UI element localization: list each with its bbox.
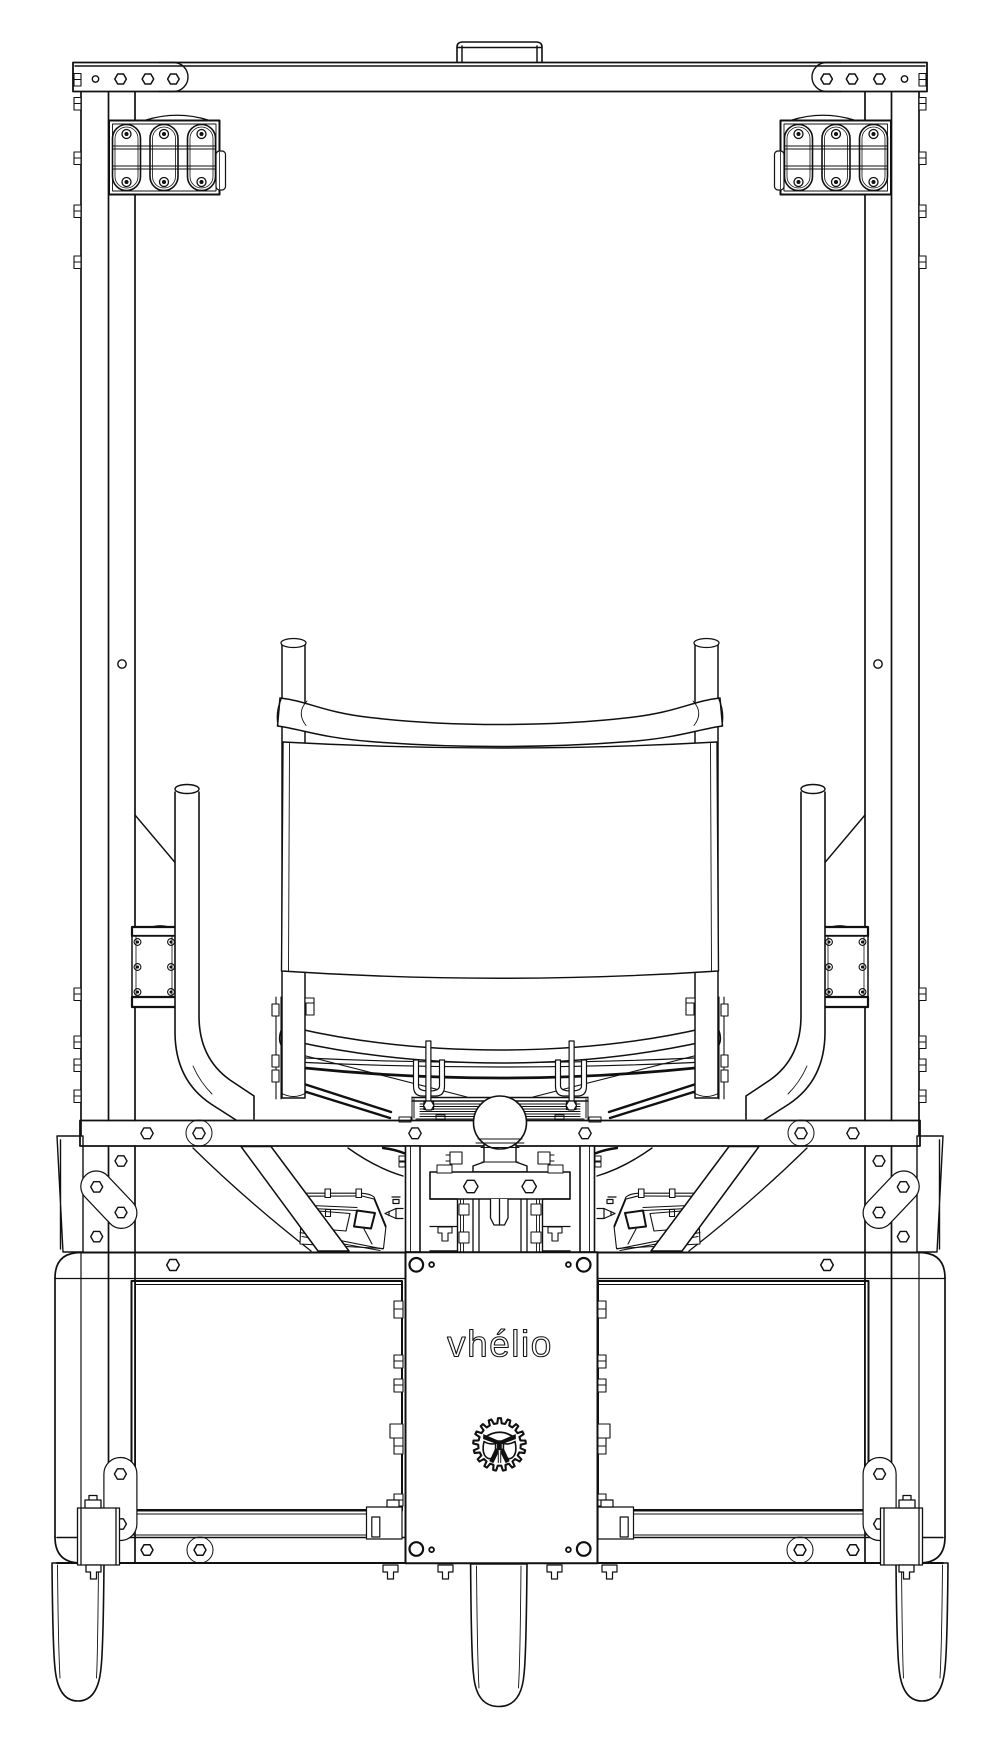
svg-text:vhélio: vhélio [447,1324,553,1365]
